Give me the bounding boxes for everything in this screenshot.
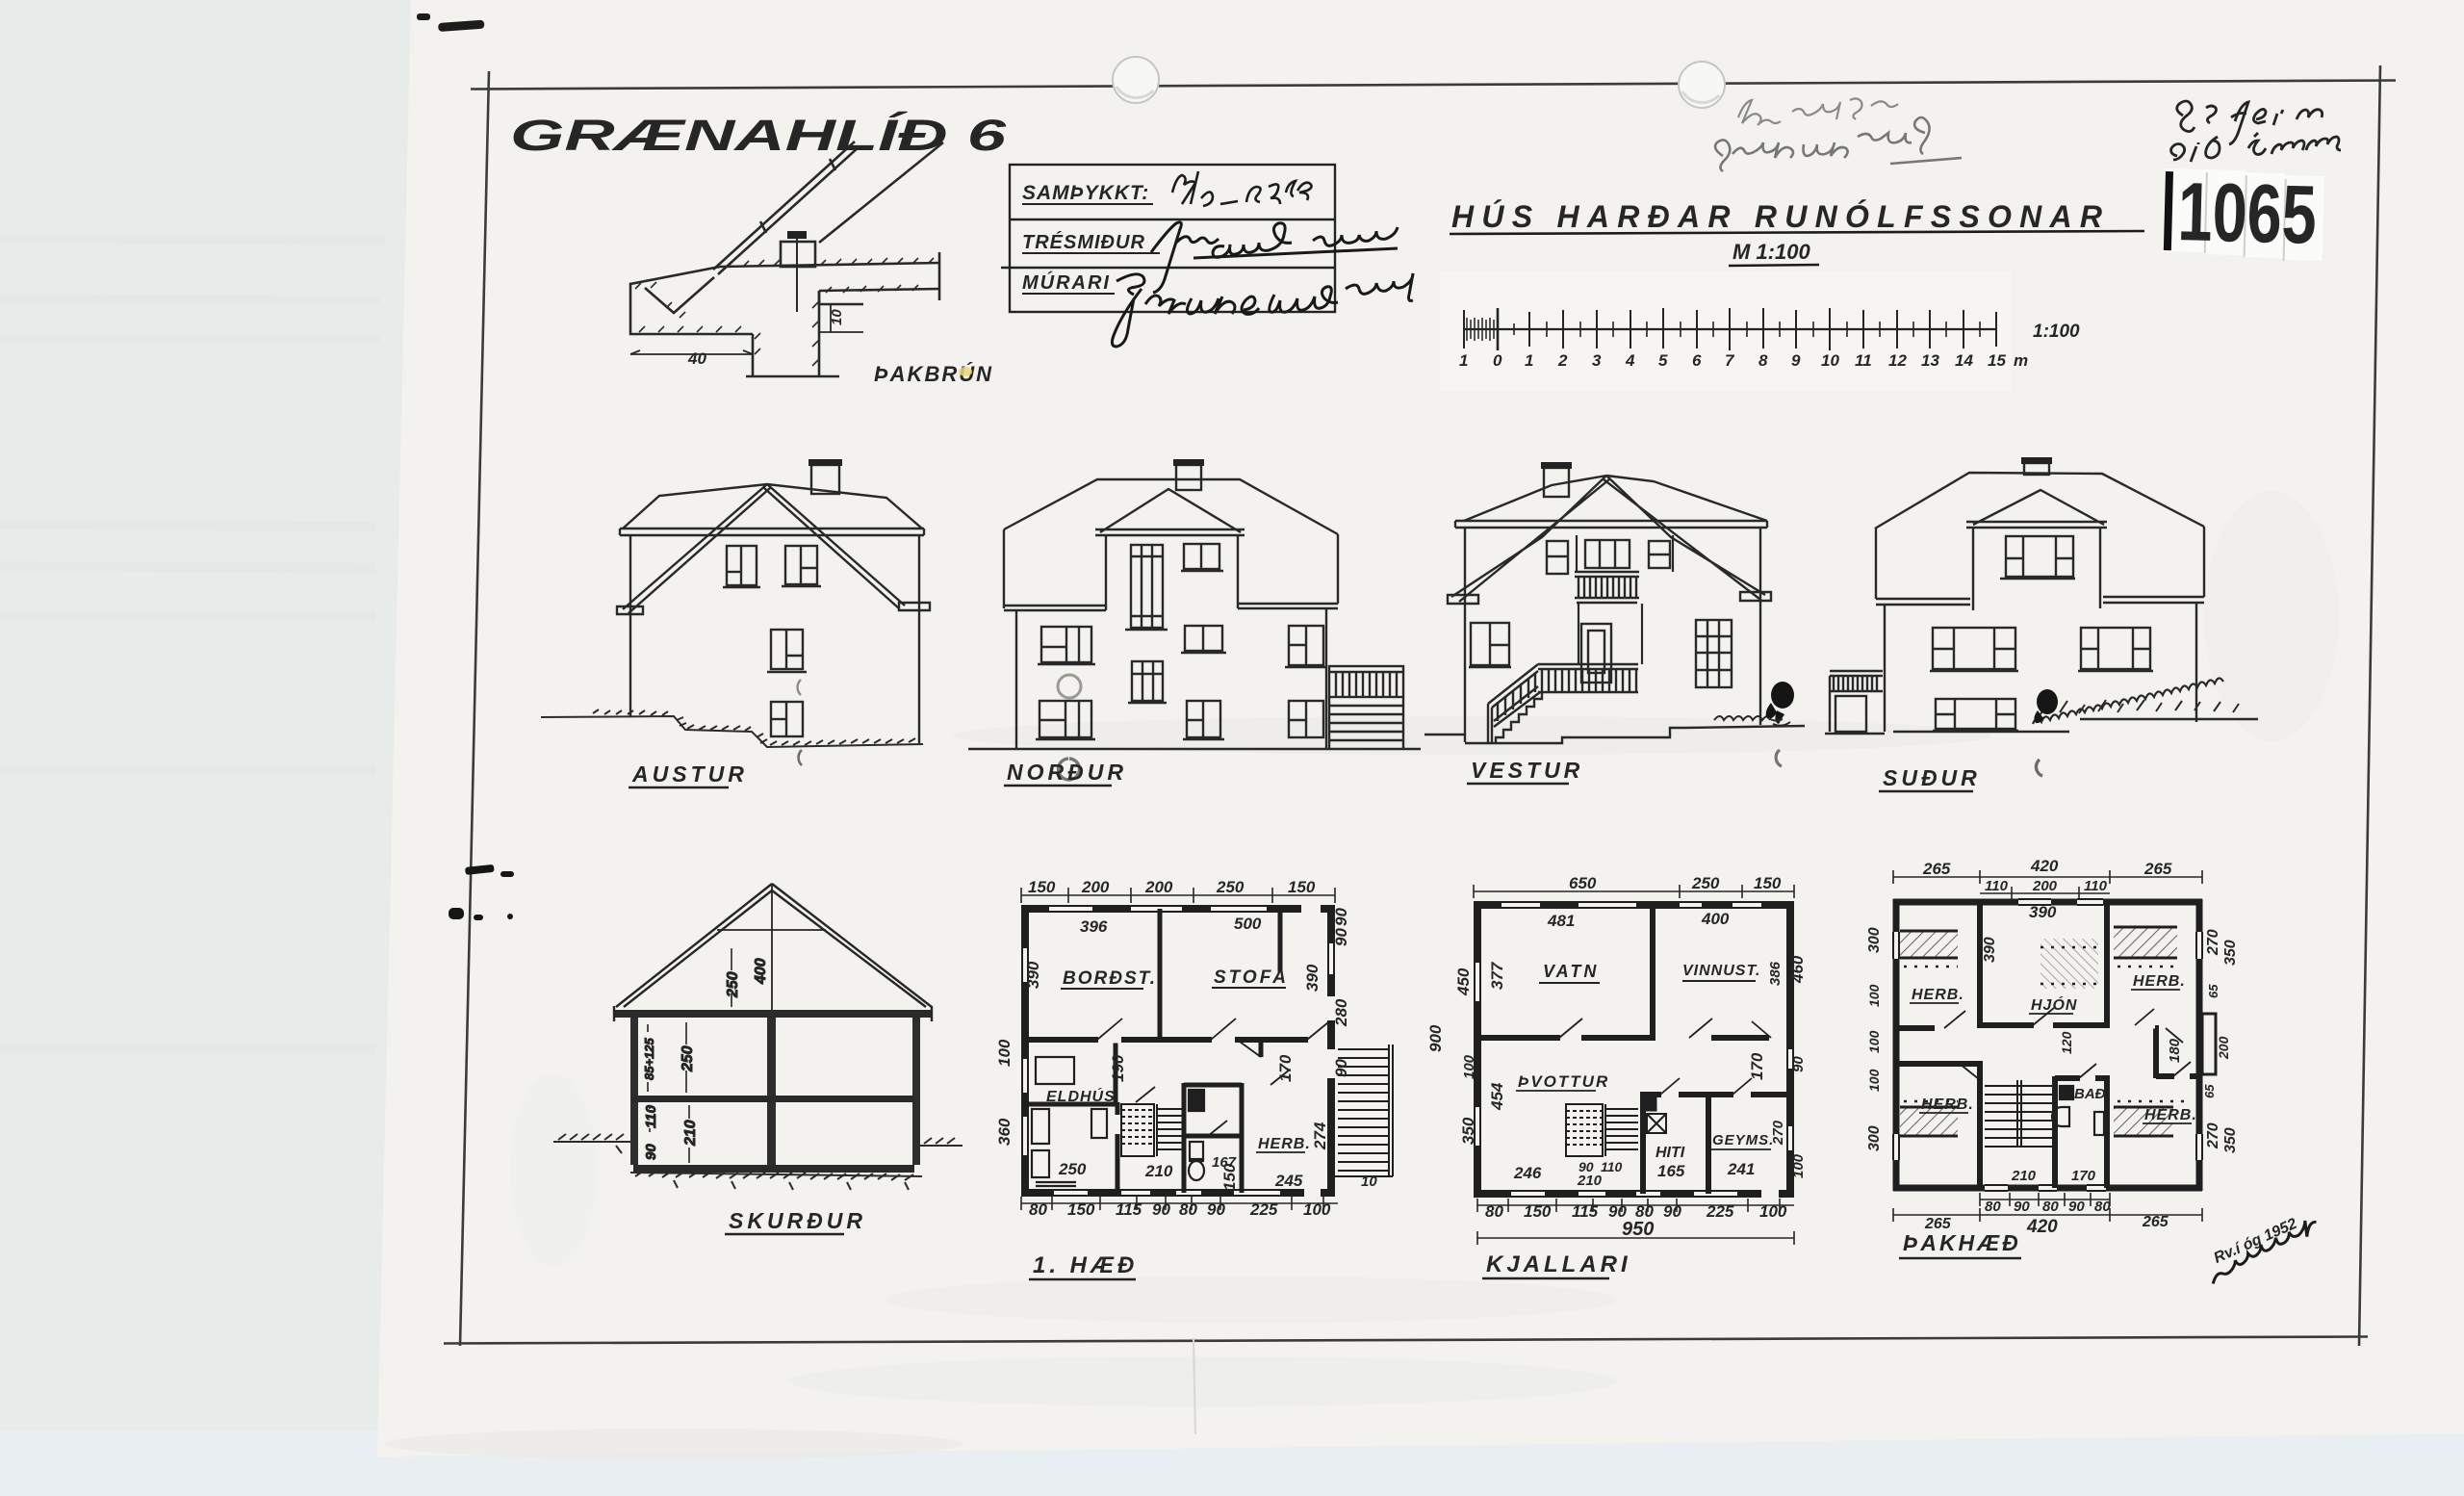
svg-text:450: 450 [1454, 967, 1473, 996]
svg-text:VINNUST.: VINNUST. [1682, 963, 1760, 979]
svg-text:10: 10 [1821, 351, 1839, 370]
svg-text:KJALLARI: KJALLARI [1486, 1251, 1631, 1277]
svg-text:250: 250 [1058, 1160, 1087, 1178]
svg-text:265: 265 [2143, 860, 2172, 878]
svg-text:ÞAKBRÚN: ÞAKBRÚN [874, 362, 993, 386]
svg-text:BORÐST.: BORÐST. [1063, 968, 1157, 989]
svg-text:190: 190 [1109, 1054, 1127, 1082]
svg-text:HERB.: HERB. [1258, 1136, 1311, 1152]
svg-text:90: 90 [1790, 1056, 1807, 1072]
svg-text:100: 100 [1866, 984, 1882, 1007]
svg-text:HJÓN: HJÓN [2031, 995, 2077, 1014]
svg-text:150: 150 [1524, 1202, 1552, 1221]
svg-text:350: 350 [2222, 940, 2239, 966]
svg-text:90: 90 [643, 1144, 659, 1160]
svg-text:ÞAKHÆÐ: ÞAKHÆÐ [1903, 1230, 2021, 1255]
svg-text:100: 100 [1866, 1030, 1882, 1053]
svg-text:150: 150 [1754, 874, 1782, 892]
svg-text:110: 110 [1601, 1159, 1623, 1174]
svg-text:12: 12 [1888, 351, 1907, 370]
svg-text:210: 210 [2011, 1168, 2037, 1184]
svg-text:350: 350 [1459, 1117, 1477, 1145]
svg-text:100: 100 [1461, 1054, 1477, 1079]
svg-text:390: 390 [1982, 937, 1998, 963]
svg-text:14: 14 [1955, 351, 1973, 370]
svg-text:950: 950 [1622, 1219, 1654, 1240]
svg-text:15: 15 [1988, 351, 2006, 370]
svg-text:481: 481 [1547, 912, 1575, 930]
svg-text:900: 900 [1426, 1024, 1445, 1052]
svg-text:1. HÆÐ: 1. HÆÐ [1033, 1252, 1138, 1278]
svg-text:90: 90 [1663, 1202, 1681, 1221]
svg-text:8: 8 [1758, 351, 1768, 370]
svg-text:170: 170 [1276, 1054, 1295, 1082]
svg-text:80: 80 [1985, 1199, 2001, 1215]
svg-text:274: 274 [1311, 1122, 1329, 1150]
svg-text:ELDHÚS: ELDHÚS [1046, 1087, 1116, 1105]
svg-text:BAÐ: BAÐ [2074, 1086, 2106, 1102]
svg-text:270: 270 [2205, 929, 2221, 956]
svg-text:HERB.: HERB. [2133, 973, 2186, 990]
svg-text:MÚRARI: MÚRARI [1022, 271, 1111, 294]
svg-text:HÚS HARÐAR RUNÓLFSSONAR: HÚS HARÐAR RUNÓLFSSONAR [1451, 199, 2106, 234]
svg-text:10: 10 [829, 309, 845, 325]
svg-text:65: 65 [2206, 984, 2220, 998]
svg-text:9: 9 [1791, 351, 1801, 370]
svg-text:TRÉSMIÐUR: TRÉSMIÐUR [1022, 231, 1145, 253]
svg-text:180: 180 [2167, 1038, 2183, 1063]
svg-text:NORÐUR: NORÐUR [1007, 760, 1127, 785]
svg-text:90: 90 [2068, 1199, 2085, 1215]
svg-text:246: 246 [1513, 1164, 1542, 1182]
svg-text:HERB.: HERB. [1921, 1096, 1974, 1113]
svg-text:HITI: HITI [1655, 1145, 1685, 1161]
svg-text:454: 454 [1488, 1082, 1506, 1111]
svg-text:300: 300 [1866, 1125, 1883, 1151]
svg-text:5: 5 [1658, 351, 1668, 370]
svg-text:VATN: VATN [1543, 962, 1599, 981]
svg-text:265: 265 [2142, 1214, 2169, 1230]
svg-text:396: 396 [1080, 917, 1108, 936]
svg-text:390: 390 [1024, 961, 1042, 989]
svg-text:80: 80 [1485, 1202, 1503, 1221]
svg-text:110: 110 [643, 1104, 659, 1128]
svg-text:100: 100 [995, 1039, 1014, 1067]
svg-text:460: 460 [1788, 955, 1807, 984]
svg-text:110: 110 [1985, 878, 2009, 894]
svg-text:80: 80 [2094, 1199, 2111, 1215]
svg-text:SAMÞYKKT:: SAMÞYKKT: [1022, 182, 1149, 204]
svg-text:165: 165 [1657, 1162, 1685, 1180]
svg-text:VESTUR: VESTUR [1471, 758, 1583, 783]
svg-text:1: 1 [1459, 351, 1468, 370]
svg-text:40: 40 [687, 349, 706, 368]
svg-text:7: 7 [1725, 351, 1735, 370]
svg-text:200: 200 [1081, 878, 1110, 896]
svg-text:1:100: 1:100 [2033, 322, 2080, 342]
svg-text:10: 10 [1361, 1174, 1377, 1190]
svg-text:250: 250 [725, 971, 741, 998]
svg-text:0: 0 [1493, 351, 1502, 370]
svg-text:200: 200 [2032, 878, 2058, 894]
svg-text:SUÐUR: SUÐUR [1883, 765, 1981, 790]
svg-text:167: 167 [1212, 1154, 1237, 1171]
svg-text:3: 3 [1592, 351, 1602, 370]
svg-text:STOFA: STOFA [1214, 967, 1289, 988]
svg-text:4: 4 [1625, 351, 1635, 370]
svg-text:210: 210 [682, 1120, 699, 1147]
svg-text:HERB.: HERB. [1912, 987, 1964, 1003]
svg-text:115: 115 [1572, 1202, 1599, 1221]
svg-text:M 1:100: M 1:100 [1732, 240, 1810, 264]
svg-text:SKURÐUR: SKURÐUR [729, 1208, 866, 1233]
svg-text:100: 100 [1866, 1069, 1882, 1092]
svg-text:65: 65 [2202, 1084, 2217, 1098]
svg-text:AUSTUR: AUSTUR [631, 761, 748, 787]
svg-text:200: 200 [1144, 878, 1173, 896]
svg-text:150: 150 [1288, 878, 1316, 896]
svg-text:90: 90 [2014, 1199, 2030, 1215]
svg-text:11: 11 [1855, 351, 1872, 370]
svg-text:210: 210 [1577, 1173, 1603, 1189]
svg-text:HERB.: HERB. [2144, 1107, 2197, 1123]
svg-text:90: 90 [1332, 1059, 1350, 1077]
svg-text:270: 270 [2205, 1122, 2221, 1149]
svg-text:GEYMS.: GEYMS. [1712, 1132, 1774, 1148]
svg-text:100: 100 [1790, 1153, 1807, 1178]
svg-text:m: m [2014, 351, 2028, 370]
svg-text:386: 386 [1767, 961, 1784, 986]
svg-text:2: 2 [1557, 351, 1568, 370]
svg-text:241: 241 [1727, 1160, 1755, 1178]
svg-text:400: 400 [753, 958, 769, 985]
svg-text:90: 90 [1332, 928, 1350, 946]
svg-text:100: 100 [1759, 1202, 1787, 1221]
svg-text:6: 6 [1692, 351, 1702, 370]
svg-text:250: 250 [680, 1045, 696, 1072]
svg-text:13: 13 [1921, 351, 1939, 370]
svg-text:120: 120 [2059, 1031, 2074, 1054]
svg-text:420: 420 [2026, 1217, 2058, 1237]
svg-text:210: 210 [1144, 1162, 1173, 1180]
svg-text:420: 420 [2030, 857, 2059, 875]
svg-text:360: 360 [995, 1118, 1014, 1146]
svg-text:390: 390 [2029, 903, 2057, 921]
svg-text:500: 500 [1234, 915, 1262, 933]
svg-text:200: 200 [2216, 1036, 2231, 1060]
svg-text:280: 280 [1332, 998, 1350, 1027]
svg-text:225: 225 [1706, 1202, 1734, 1221]
svg-text:170: 170 [1748, 1052, 1766, 1080]
svg-text:245: 245 [1274, 1172, 1303, 1190]
svg-text:1: 1 [1525, 351, 1533, 370]
svg-text:650: 650 [1569, 874, 1597, 892]
svg-text:300: 300 [1866, 927, 1883, 953]
svg-text:80: 80 [2042, 1199, 2059, 1215]
svg-text:ÞVOTTUR: ÞVOTTUR [1518, 1072, 1609, 1091]
svg-text:110: 110 [2084, 878, 2108, 894]
svg-text:1065: 1065 [2177, 166, 2318, 262]
svg-text:90: 90 [1332, 908, 1350, 926]
svg-text:400: 400 [1701, 910, 1730, 928]
svg-text:250: 250 [1216, 878, 1245, 896]
svg-text:265: 265 [1922, 860, 1951, 878]
svg-text:390: 390 [1303, 964, 1322, 992]
svg-text:150: 150 [1028, 878, 1056, 896]
svg-text:350: 350 [2222, 1127, 2239, 1153]
svg-text:250: 250 [1691, 874, 1720, 892]
svg-text:377: 377 [1488, 961, 1506, 990]
svg-text:170: 170 [2071, 1168, 2096, 1184]
svg-text:85+125: 85+125 [642, 1037, 656, 1080]
